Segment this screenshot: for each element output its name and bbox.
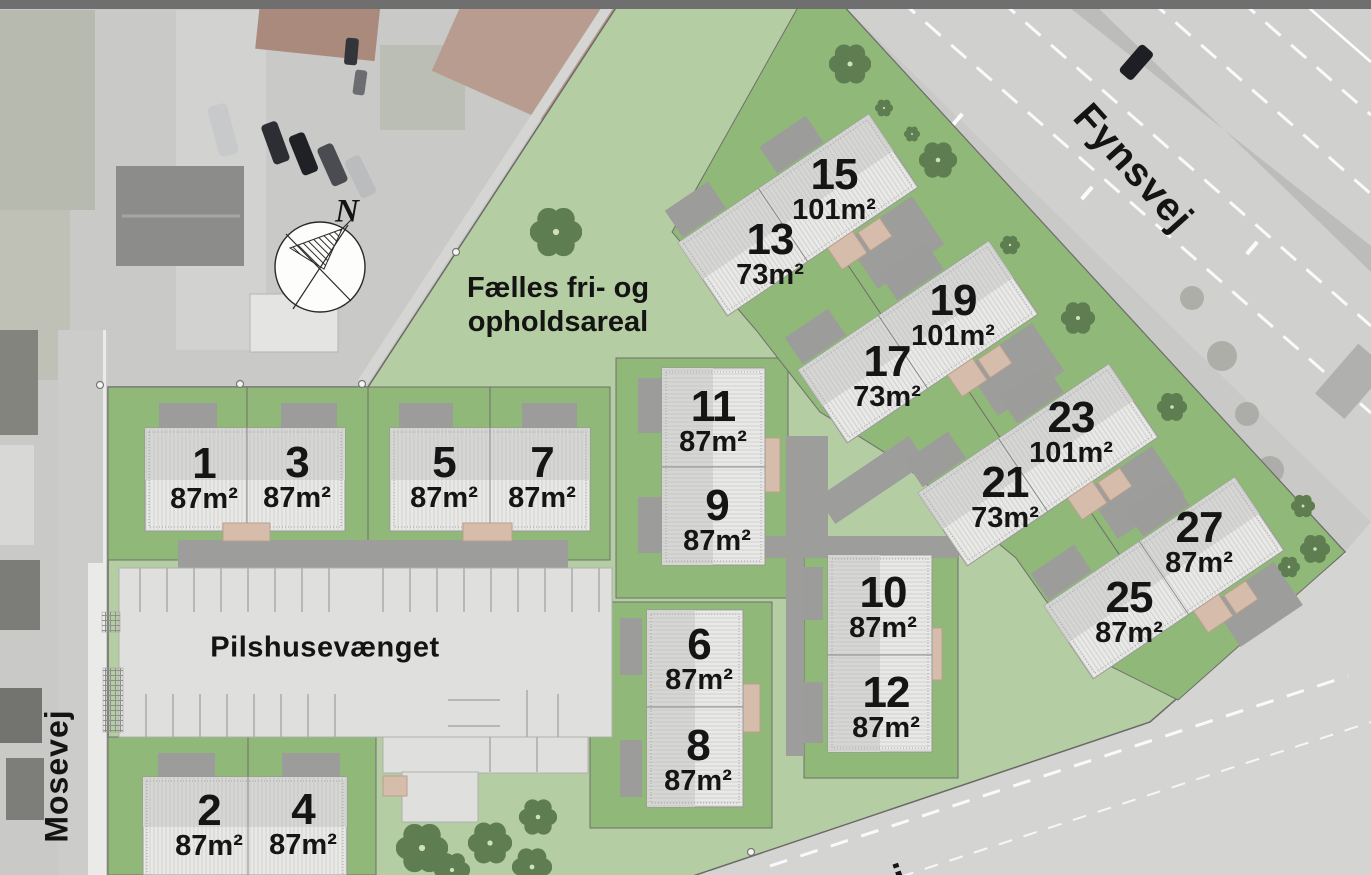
unit-label-6: 687m² <box>665 624 733 696</box>
unit-number: 8 <box>686 725 709 766</box>
unit-number: 25 <box>1106 577 1153 618</box>
site-plan: Fynsvej Mosevej vej Fælles fri- og ophol… <box>0 0 1371 875</box>
unit-label-7: 787m² <box>508 442 576 514</box>
unit-area: 87m² <box>1165 548 1233 579</box>
unit-label-21: 2173m² <box>971 462 1039 534</box>
unit-number: 7 <box>530 442 553 483</box>
unit-area: 87m² <box>263 483 331 514</box>
unit-label-19: 19101m² <box>911 280 995 352</box>
unit-area: 73m² <box>736 260 804 291</box>
unit-label-11: 1187m² <box>679 386 747 458</box>
unit-area: 101m² <box>792 195 876 226</box>
unit-label-13: 1373m² <box>736 219 804 291</box>
unit-area: 87m² <box>175 831 243 862</box>
unit-area: 87m² <box>410 483 478 514</box>
unit-number: 11 <box>691 386 736 427</box>
unit-number: 13 <box>747 219 794 260</box>
unit-area: 87m² <box>679 427 747 458</box>
unit-area: 87m² <box>683 526 751 557</box>
unit-label-3: 387m² <box>263 442 331 514</box>
unit-area: 87m² <box>170 484 238 515</box>
unit-label-5: 587m² <box>410 442 478 514</box>
unit-area: 87m² <box>269 830 337 861</box>
unit-number: 27 <box>1176 507 1223 548</box>
unit-number: 10 <box>860 572 907 613</box>
unit-label-9: 987m² <box>683 485 751 557</box>
unit-area: 101m² <box>1029 438 1113 469</box>
unit-label-25: 2587m² <box>1095 577 1163 649</box>
unit-number: 12 <box>863 672 910 713</box>
unit-area: 87m² <box>665 665 733 696</box>
top-border <box>0 0 1371 9</box>
unit-label-27: 2787m² <box>1165 507 1233 579</box>
unit-area: 87m² <box>508 483 576 514</box>
unit-label-4: 487m² <box>269 789 337 861</box>
unit-number: 1 <box>192 443 215 484</box>
unit-area: 73m² <box>971 503 1039 534</box>
unit-number: 3 <box>285 442 308 483</box>
unit-number: 23 <box>1048 397 1095 438</box>
unit-label-2: 287m² <box>175 790 243 862</box>
unit-number: 21 <box>982 462 1029 503</box>
unit-label-23: 23101m² <box>1029 397 1113 469</box>
unit-area: 87m² <box>664 766 732 797</box>
unit-label-8: 887m² <box>664 725 732 797</box>
unit-label-15: 15101m² <box>792 154 876 226</box>
unit-number: 4 <box>291 789 314 830</box>
unit-number: 19 <box>930 280 977 321</box>
unit-area: 87m² <box>852 713 920 744</box>
unit-number: 9 <box>705 485 728 526</box>
unit-area: 73m² <box>853 382 921 413</box>
unit-label-12: 1287m² <box>852 672 920 744</box>
unit-number: 6 <box>687 624 710 665</box>
unit-number: 2 <box>197 790 220 831</box>
unit-label-1: 187m² <box>170 443 238 515</box>
unit-area: 87m² <box>849 613 917 644</box>
unit-number: 5 <box>432 442 455 483</box>
unit-label-10: 1087m² <box>849 572 917 644</box>
unit-area: 101m² <box>911 321 995 352</box>
unit-area: 87m² <box>1095 618 1163 649</box>
unit-number: 15 <box>811 154 858 195</box>
unit-number: 17 <box>864 341 911 382</box>
